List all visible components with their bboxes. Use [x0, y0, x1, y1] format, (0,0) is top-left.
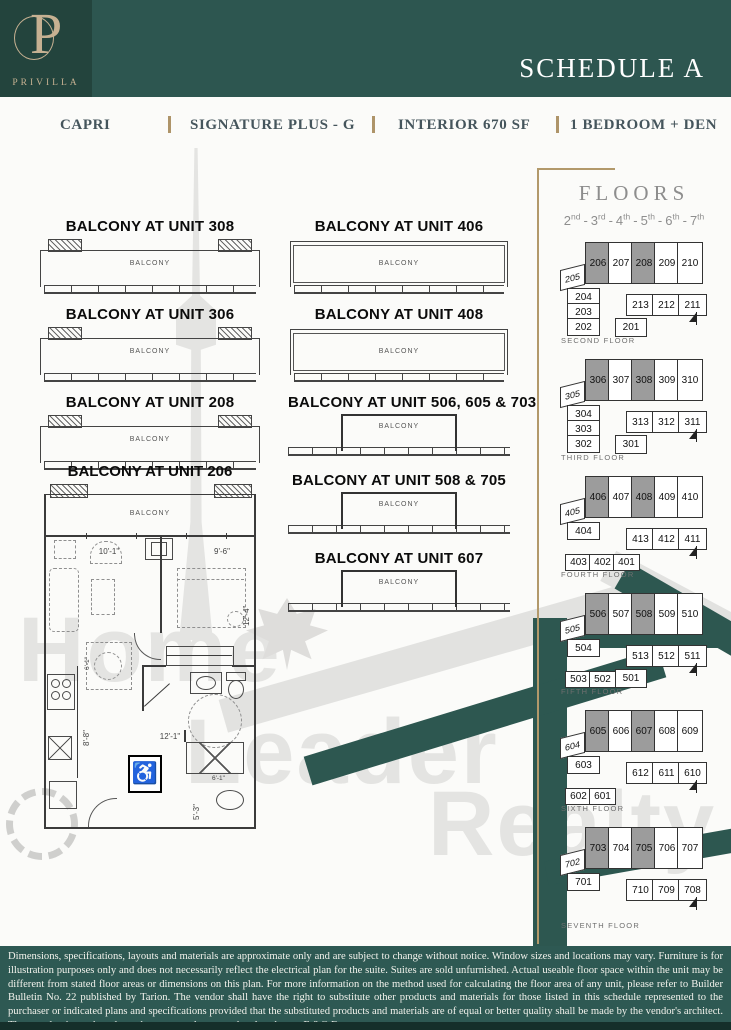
key-plan-fifth-floor: 506507508509510505504503502501513512511F… [559, 591, 709, 697]
balcony-room-label: BALCONY [38, 348, 262, 355]
wall [40, 426, 260, 427]
floor-label: SIXTH FLOOR [561, 804, 624, 813]
floor-ordinal: 2nd [564, 213, 581, 228]
sofa [49, 568, 79, 632]
balcony-room-label: BALCONY [343, 423, 454, 430]
unit-cell: 212 [652, 294, 681, 316]
window-wall [46, 535, 254, 537]
floor-label: FOURTH FLOOR [561, 570, 634, 579]
balcony-room-label: BALCONY [38, 260, 262, 267]
monogram-letter: P [30, 0, 62, 67]
wall [40, 338, 41, 375]
privilla-monogram-icon: P [14, 6, 78, 70]
unit-cell: 202 [567, 318, 600, 336]
panel-border [537, 168, 615, 170]
unit-cell: 513 [626, 645, 655, 667]
floor-ordinal: 6th [665, 213, 679, 228]
privilla-logo: P PRIVILLA [0, 0, 92, 97]
shower [186, 742, 244, 774]
unit-cell: 502 [589, 671, 616, 688]
key-plan-seventh-floor: 703704705706707702701710709708SEVENTH FL… [559, 825, 709, 931]
unit-cell: 503 [565, 671, 592, 688]
north-arrow-sail [689, 313, 696, 322]
balcony-drawing: BALCONY [38, 238, 262, 296]
balcony-title: BALCONY AT UNIT 206 [38, 463, 262, 480]
dash: - [633, 213, 637, 228]
closet [166, 646, 234, 666]
wall [142, 665, 166, 667]
dash: - [658, 213, 662, 228]
balcony-outline: BALCONY [341, 414, 456, 451]
balcony-room-label: BALCONY [343, 579, 454, 586]
burner [62, 691, 71, 700]
north-arrow-icon [689, 780, 699, 794]
disclaimer: Dimensions, specifications, layouts and … [0, 946, 731, 1022]
header-bar: P PRIVILLA SCHEDULE A [0, 0, 731, 97]
balcony-drawing: BALCONY [38, 326, 262, 384]
north-arrow-icon [689, 897, 699, 911]
unit-cell: 602 [565, 788, 592, 805]
unit-cell: 609 [677, 710, 703, 752]
burner [51, 691, 60, 700]
north-arrow-sail [689, 898, 696, 907]
key-plan-second-floor: 206207208209210205204203202201213212211S… [559, 240, 709, 346]
balcony-title: BALCONY AT UNIT 506, 605 & 703 [288, 394, 510, 411]
floor-label: THIRD FLOOR [561, 453, 625, 462]
balcony-drawing: BALCONY [288, 238, 510, 296]
dim-bed-depth: 12'-4" [242, 606, 251, 626]
balcony-room-label: BALCONY [44, 510, 256, 517]
balcony-drawing: BALCONY [288, 570, 510, 618]
balcony-column-middle: BALCONY AT UNIT 406BALCONYBALCONY AT UNI… [288, 218, 510, 628]
floor-label: SEVENTH FLOOR [561, 921, 640, 930]
closet-rod [166, 655, 232, 656]
hatch-block [214, 484, 252, 498]
unit-cell: 612 [626, 762, 655, 784]
divider [556, 116, 559, 133]
unit-cell: 404 [567, 522, 600, 540]
unit-cell: 707 [677, 827, 703, 869]
north-arrow-icon [689, 429, 699, 443]
wall [40, 250, 260, 251]
north-arrow-icon [689, 663, 699, 677]
wall [142, 665, 144, 711]
balcony-item: BALCONY AT UNIT 208BALCONY [38, 394, 262, 472]
tv-screen [151, 542, 167, 556]
interior-size: INTERIOR 670 SF [398, 117, 530, 134]
side-table [54, 540, 76, 559]
north-arrow-stem [696, 780, 697, 793]
floor-ordinal: 5th [641, 213, 655, 228]
dining-table-top [94, 652, 122, 680]
counter-edge [77, 666, 78, 778]
key-plan-third-floor: 306307308309310305304303302301313312311T… [559, 357, 709, 463]
balcony-room-label: BALCONY [288, 348, 510, 355]
window-band [44, 285, 256, 294]
project-name: CAPRI [60, 117, 111, 134]
window-band [44, 373, 256, 382]
unit-cell: 603 [567, 756, 600, 774]
key-plan-fourth-floor: 406407408409410405404403402401413412411F… [559, 474, 709, 580]
north-arrow-stem [696, 663, 697, 676]
mullion [86, 533, 87, 539]
schedule-title: SCHEDULE A [519, 53, 705, 84]
wall [259, 250, 260, 287]
window-band [294, 285, 504, 294]
wall [290, 241, 508, 242]
divider [372, 116, 375, 133]
north-arrow-icon [689, 312, 699, 326]
unit-cell: 401 [613, 554, 640, 571]
balcony-title: BALCONY AT UNIT 208 [38, 394, 262, 411]
entry-door-arc [88, 798, 117, 827]
unit-cell: 410 [677, 476, 703, 518]
unit-cell: 313 [626, 411, 655, 433]
balcony-drawing: BALCONY [288, 414, 510, 462]
balcony-item: BALCONY AT UNIT 406BALCONY [288, 218, 510, 296]
mullion [136, 533, 137, 539]
wall [160, 537, 162, 633]
floor-label: FIFTH FLOOR [561, 687, 623, 696]
floors-panel: FLOORS 2nd-3rd-4th-5th-6th-7th 206207208… [537, 168, 731, 942]
floor-label: SECOND FLOOR [561, 336, 635, 345]
wall [232, 665, 254, 667]
turning-circle [188, 694, 242, 748]
dim-bath-depth: 5'-3" [192, 804, 201, 820]
dim-dining: 6'-1" [84, 657, 91, 670]
wall [254, 494, 256, 829]
panel-border [537, 168, 539, 944]
wall [44, 494, 46, 829]
balcony-column-left: BALCONY AT UNIT 308BALCONYBALCONY AT UNI… [38, 218, 262, 482]
balcony-title: BALCONY AT UNIT 508 & 705 [288, 472, 510, 489]
cabinet [49, 781, 77, 809]
unit-cell: 201 [615, 318, 647, 337]
balcony-title: BALCONY AT UNIT 408 [288, 306, 510, 323]
balcony-room-label: BALCONY [38, 436, 262, 443]
bedroom-type: 1 BEDROOM + DEN [570, 117, 717, 134]
bath-sink [196, 676, 216, 690]
unit-cell: 501 [615, 669, 647, 688]
unit-cell: 710 [626, 879, 655, 901]
key-plan-sixth-floor: 605606607608609604603602601612611610SIXT… [559, 708, 709, 814]
north-arrow-sail [689, 781, 696, 790]
hatch-block [50, 484, 88, 498]
wall [40, 250, 41, 287]
north-arrow-sail [689, 430, 696, 439]
unit-cell: 312 [652, 411, 681, 433]
balcony-item: BALCONY AT UNIT 308BALCONY [38, 218, 262, 296]
unit-cell: 512 [652, 645, 681, 667]
floor-ordinal: 7th [690, 213, 704, 228]
north-arrow-sail [689, 547, 696, 556]
balcony-room-label: BALCONY [343, 501, 454, 508]
north-arrow-sail [689, 664, 696, 673]
model-name: SIGNATURE PLUS - G [190, 117, 355, 134]
balcony-item: BALCONY AT UNIT 506, 605 & 703BALCONY [288, 394, 510, 462]
north-arrow-stem [696, 897, 697, 910]
pillow-line [177, 579, 244, 580]
balcony-room-label: BALCONY [288, 260, 510, 267]
unit-cell: 611 [652, 762, 681, 784]
burner [51, 679, 60, 688]
unit-cell: 510 [677, 593, 703, 635]
unit-cell: 210 [677, 242, 703, 284]
door-leaf [144, 683, 170, 706]
wall [290, 329, 508, 330]
dash: - [609, 213, 613, 228]
unit-cell: 504 [567, 639, 600, 657]
unit-cell: 701 [567, 873, 600, 891]
wall [259, 426, 260, 463]
burner [62, 679, 71, 688]
dim-shower: 6'-1" [212, 775, 225, 782]
floors-list: 2nd-3rd-4th-5th-6th-7th [537, 212, 731, 228]
unit-206-floor-plan: BALCONY 10'-1" 9'-6" 12'-4" [44, 484, 256, 839]
unit-206-plan-block: BALCONY AT UNIT 206 BALCONY 10'-1" 9'-6" [38, 463, 262, 839]
divider [168, 116, 171, 133]
unit-cell: 213 [626, 294, 655, 316]
north-arrow-stem [696, 546, 697, 559]
balcony-outline: BALCONY [341, 570, 456, 607]
accessibility-icon: ♿ [128, 755, 162, 793]
floor-ordinal: 3rd [591, 213, 606, 228]
unit-cell: 310 [677, 359, 703, 401]
floor-ordinal: 4th [616, 213, 630, 228]
toilet-bowl [228, 680, 244, 699]
north-arrow-stem [696, 312, 697, 325]
unit-cell: 402 [589, 554, 616, 571]
balcony-item: BALCONY AT UNIT 306BALCONY [38, 306, 262, 384]
balcony-title: BALCONY AT UNIT 306 [38, 306, 262, 323]
dim-living-width: 10'-1" [74, 547, 144, 556]
mullion [186, 533, 187, 539]
balcony-drawing: BALCONY [288, 492, 510, 540]
key-plans: 206207208209210205204203202201213212211S… [537, 240, 731, 931]
unit-cell: 601 [589, 788, 616, 805]
balcony-outline: BALCONY [341, 492, 456, 529]
schedule-a-page: Home Leader Realty P PRIVILLA SCHEDULE A… [0, 0, 731, 1030]
dim-bed-width: 9'-6" [196, 547, 248, 556]
door-arc [134, 633, 161, 660]
coffee-table [91, 579, 115, 615]
unit-cell: 709 [652, 879, 681, 901]
unit-cell: 413 [626, 528, 655, 550]
wall [40, 426, 41, 463]
disclaimer-text: Dimensions, specifications, layouts and … [8, 950, 723, 1030]
north-arrow-stem [696, 429, 697, 442]
dash: - [683, 213, 687, 228]
balcony-drawing: BALCONY [288, 326, 510, 384]
floors-title: FLOORS [537, 181, 731, 206]
balcony-title: BALCONY AT UNIT 607 [288, 550, 510, 567]
unit-cell: 412 [652, 528, 681, 550]
brand-name: PRIVILLA [0, 78, 92, 88]
wall [259, 338, 260, 375]
bottom-strip [0, 1022, 731, 1030]
unit-cell: 403 [565, 554, 592, 571]
balcony-item: BALCONY AT UNIT 508 & 705BALCONY [288, 472, 510, 540]
wall [184, 730, 186, 742]
balcony-item: BALCONY AT UNIT 408BALCONY [288, 306, 510, 384]
balcony-title: BALCONY AT UNIT 308 [38, 218, 262, 235]
balcony-title: BALCONY AT UNIT 406 [288, 218, 510, 235]
dash: - [583, 213, 587, 228]
bath-fixture [216, 790, 244, 810]
kitchen-sink [48, 736, 72, 760]
balcony-item: BALCONY AT UNIT 607BALCONY [288, 550, 510, 618]
unit-cell: 302 [567, 435, 600, 453]
wall [44, 494, 256, 495]
window-band [294, 373, 504, 382]
unit-cell: 301 [615, 435, 647, 454]
wall [40, 338, 260, 339]
north-arrow-icon [689, 546, 699, 560]
dim-kitchen-depth: 8'-8" [82, 730, 91, 746]
wall [44, 827, 256, 829]
mullion [226, 533, 227, 539]
